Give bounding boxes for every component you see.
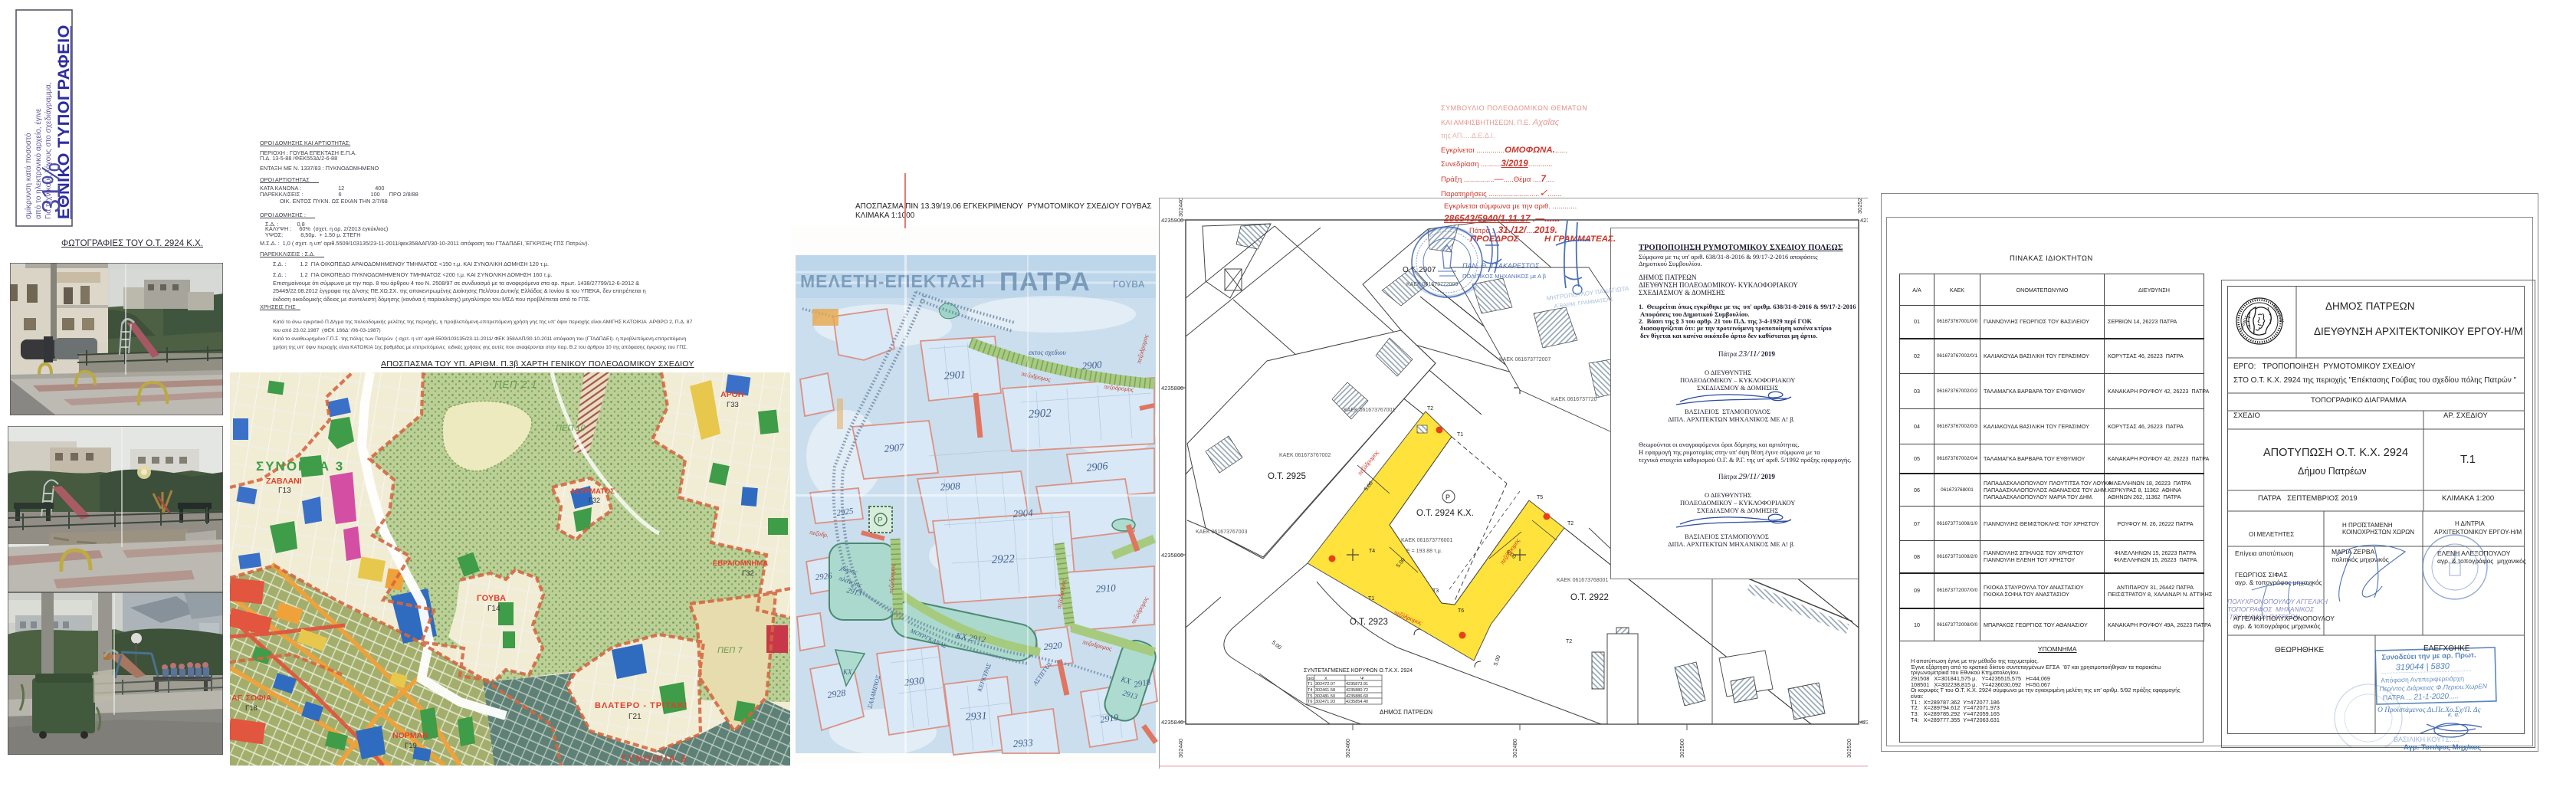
svg-text:T2: T2 xyxy=(1566,639,1572,644)
svg-text:ΠΕΠ 2.1: ΠΕΠ 2.1 xyxy=(494,379,537,390)
svg-text:302500: 302500 xyxy=(1679,739,1685,758)
svg-text:Ο.Τ. 2924 Κ.Χ.: Ο.Τ. 2924 Κ.Χ. xyxy=(1416,509,1474,518)
svg-text:2906: 2906 xyxy=(1086,461,1108,474)
svg-text:ΔΗΜΟΣ ΠΑΤΡΕΩΝ: ΔΗΜΟΣ ΠΑΤΡΕΩΝ xyxy=(1380,709,1432,716)
svg-text:302481.50: 302481.50 xyxy=(1315,694,1335,699)
svg-text:T1: T1 xyxy=(1457,432,1463,438)
svg-text:2908: 2908 xyxy=(940,480,960,493)
svg-text:ΠΑΤΡΑ: ΠΑΤΡΑ xyxy=(999,267,1091,297)
svg-text:T4: T4 xyxy=(1369,549,1375,554)
svg-text:Ψ: Ψ xyxy=(1360,677,1364,681)
svg-text:2907: 2907 xyxy=(884,441,905,454)
svg-text:ΖΑΒΛΑΝΙ: ΖΑΒΛΑΝΙ xyxy=(266,477,302,486)
svg-text:ΜΕΛΕΤΗ-ΕΠΕΚΤΑΣΗ: ΜΕΛΕΤΗ-ΕΠΕΚΤΑΣΗ xyxy=(800,271,986,291)
svg-text:4235880.72: 4235880.72 xyxy=(1346,688,1368,693)
svg-text:302520: 302520 xyxy=(1846,739,1852,758)
svg-text:302472.07: 302472.07 xyxy=(1315,682,1335,687)
svg-text:2926: 2926 xyxy=(815,572,833,582)
svg-text:5.00: 5.00 xyxy=(1271,640,1282,651)
svg-text:Ο.Τ. 2922: Ο.Τ. 2922 xyxy=(1570,593,1609,602)
svg-text:T3: T3 xyxy=(1432,589,1439,594)
svg-text:Γ14: Γ14 xyxy=(487,605,500,613)
svg-text:ΣΥΝΤΕΤΑΓΜΕΝΕΣ ΚΟΡΥΦΩΝ Ο.Τ.Κ.Χ.: ΣΥΝΤΕΤΑΓΜΕΝΕΣ ΚΟΡΥΦΩΝ Ο.Τ.Κ.Χ. 2924 xyxy=(1304,668,1413,674)
svg-text:κ. α.: κ. α. xyxy=(2448,711,2460,718)
svg-text:T6: T6 xyxy=(1308,700,1312,704)
svg-text:2931: 2931 xyxy=(965,710,987,723)
svg-text:ΑΣΥΡΜΑΤΟΣ: ΑΣΥΡΜΑΤΟΣ xyxy=(570,487,615,496)
svg-text:Γ19: Γ19 xyxy=(405,742,417,750)
svg-text:ΠΟΛΙΤΙΚΟΣ ΜΗΧΑΝΙΚΟΣ με Α β: ΠΟΛΙΤΙΚΟΣ ΜΗΧΑΝΙΚΟΣ με Α β xyxy=(1462,273,1547,280)
svg-text:T1: T1 xyxy=(1368,596,1374,602)
svg-text:ΒΛΑΤΕΡΟ - ΤΡΙΤΑΚΙ: ΒΛΑΤΕΡΟ - ΤΡΙΤΑΚΙ xyxy=(595,701,687,710)
svg-text:ΠΕΠ 7: ΠΕΠ 7 xyxy=(717,646,743,655)
svg-text:2904: 2904 xyxy=(1012,507,1033,520)
svg-text:2901: 2901 xyxy=(943,369,966,382)
svg-text:ΚΑΕΚ 061673776001: ΚΑΕΚ 061673776001 xyxy=(1401,538,1452,543)
svg-text:Γ33: Γ33 xyxy=(727,401,739,409)
svg-text:P: P xyxy=(1446,493,1450,501)
svg-text:302440: 302440 xyxy=(1177,198,1184,217)
svg-text:302480: 302480 xyxy=(1511,739,1518,758)
svg-text:5.00: 5.00 xyxy=(1493,654,1501,666)
svg-text:4235840: 4235840 xyxy=(1860,720,1868,726)
svg-text:2933: 2933 xyxy=(1012,736,1033,749)
svg-text:T2: T2 xyxy=(1427,406,1433,411)
svg-text:Γ21: Γ21 xyxy=(628,713,642,721)
svg-text:ΚΧ: ΚΧ xyxy=(842,668,852,676)
svg-text:Ε = 193.88 τ.μ.: Ε = 193.88 τ.μ. xyxy=(1406,549,1442,554)
svg-text:ΣΥΝΟΙΚΙΑ 3: ΣΥΝΟΙΚΙΑ 3 xyxy=(256,459,344,474)
svg-text:2902: 2902 xyxy=(1028,407,1052,421)
svg-text:ΒΑΣΙΛΙΚΗ ΚΟΥΤΣ.....: ΒΑΣΙΛΙΚΗ ΚΟΥΤΣ..... xyxy=(2394,736,2460,743)
svg-text:ΚΑΕΚ 061673767003: ΚΑΕΚ 061673767003 xyxy=(1196,530,1247,535)
svg-text:α/α: α/α xyxy=(1308,677,1314,681)
svg-text:ΓΟΥΒΑ: ΓΟΥΒΑ xyxy=(477,594,506,603)
svg-text:ΑΓ. ΣΟΦΙΑ: ΑΓ. ΣΟΦΙΑ xyxy=(231,693,272,703)
svg-text:2910: 2910 xyxy=(1095,582,1116,595)
svg-text:302440: 302440 xyxy=(1177,739,1184,758)
svg-text:Γ32: Γ32 xyxy=(589,497,600,504)
svg-text:2900: 2900 xyxy=(1081,359,1103,372)
svg-text:302460: 302460 xyxy=(1344,739,1351,758)
svg-text:ΚΑΕΚ 061673767001: ΚΑΕΚ 061673767001 xyxy=(1344,408,1395,413)
svg-text:302520: 302520 xyxy=(1856,198,1863,214)
svg-text:ΚΑΕΚ 061673768001: ΚΑΕΚ 061673768001 xyxy=(1557,578,1608,583)
svg-text:ΝΟΡΜΑΝ: ΝΟΡΜΑΝ xyxy=(392,731,428,740)
svg-text:4235854.40: 4235854.40 xyxy=(1346,700,1368,704)
svg-text:302461.58: 302461.58 xyxy=(1315,688,1335,693)
svg-text:ΠΑΤΡΑ ... 21-1-2020.....: ΠΑΤΡΑ ... 21-1-2020..... xyxy=(2383,692,2459,703)
svg-text:ΚΑΕΚ 061673772007: ΚΑΕΚ 061673772007 xyxy=(1499,357,1551,362)
svg-text:ΣΥΝΟΙΚΙΑ 5: ΣΥΝΟΙΚΙΑ 5 xyxy=(621,753,687,764)
svg-text:T1: T1 xyxy=(1308,682,1312,687)
svg-text:ΚΑΕΚ 061673767002: ΚΑΕΚ 061673767002 xyxy=(1279,453,1331,458)
svg-text:4235886.60: 4235886.60 xyxy=(1346,694,1368,699)
svg-text:T2: T2 xyxy=(1567,521,1573,526)
svg-text:πεζόδρομος: πεζόδρομος xyxy=(1356,448,1380,477)
svg-text:2920: 2920 xyxy=(1043,640,1062,652)
svg-text:T5: T5 xyxy=(1308,694,1312,699)
svg-text:Ο.Τ. 2923: Ο.Τ. 2923 xyxy=(1350,618,1388,627)
svg-text:ΠΕΠ 10: ΠΕΠ 10 xyxy=(556,424,586,433)
svg-text:P: P xyxy=(878,516,883,525)
svg-text:Γ18: Γ18 xyxy=(245,704,258,713)
svg-text:T5: T5 xyxy=(1537,495,1543,500)
svg-text:ΑΡΟΗ: ΑΡΟΗ xyxy=(720,390,743,399)
svg-text:T6: T6 xyxy=(1458,608,1464,614)
svg-text:Γ13: Γ13 xyxy=(278,487,291,495)
svg-text:Ο.Τ. 2925: Ο.Τ. 2925 xyxy=(1268,472,1306,481)
svg-text:4235900: 4235900 xyxy=(1860,217,1868,224)
svg-text:ΓΟΥΒΑ: ΓΟΥΒΑ xyxy=(1113,279,1145,290)
svg-text:εκτος σχεδιου: εκτος σχεδιου xyxy=(1029,349,1066,356)
svg-text:ΚΑΕΚ 0616737720: ΚΑΕΚ 0616737720 xyxy=(1551,397,1597,402)
svg-text:Ο Προϊστάμενος Δι.Πε.Χο.Σχ/Π.: Ο Προϊστάμενος Δι.Πε.Χο.Σχ/Π. Δς xyxy=(2377,707,2481,714)
svg-text:4235873.91: 4235873.91 xyxy=(1346,682,1368,687)
svg-text:Χ: Χ xyxy=(1324,677,1327,681)
svg-text:2922: 2922 xyxy=(991,552,1015,566)
svg-text:302471.93: 302471.93 xyxy=(1315,700,1335,704)
svg-text:ΕΒΡΑΙΟΜΝΗΜΑ: ΕΒΡΑΙΟΜΝΗΜΑ xyxy=(713,559,768,568)
svg-text:ΠΑΝ. Θ. ΤΣΑΚΑΡΕΣΤΟΣ: ΠΑΝ. Θ. ΤΣΑΚΑΡΕΣΤΟΣ xyxy=(1462,262,1540,270)
svg-text:T4: T4 xyxy=(1308,688,1312,693)
svg-text:Γ32: Γ32 xyxy=(742,569,754,578)
